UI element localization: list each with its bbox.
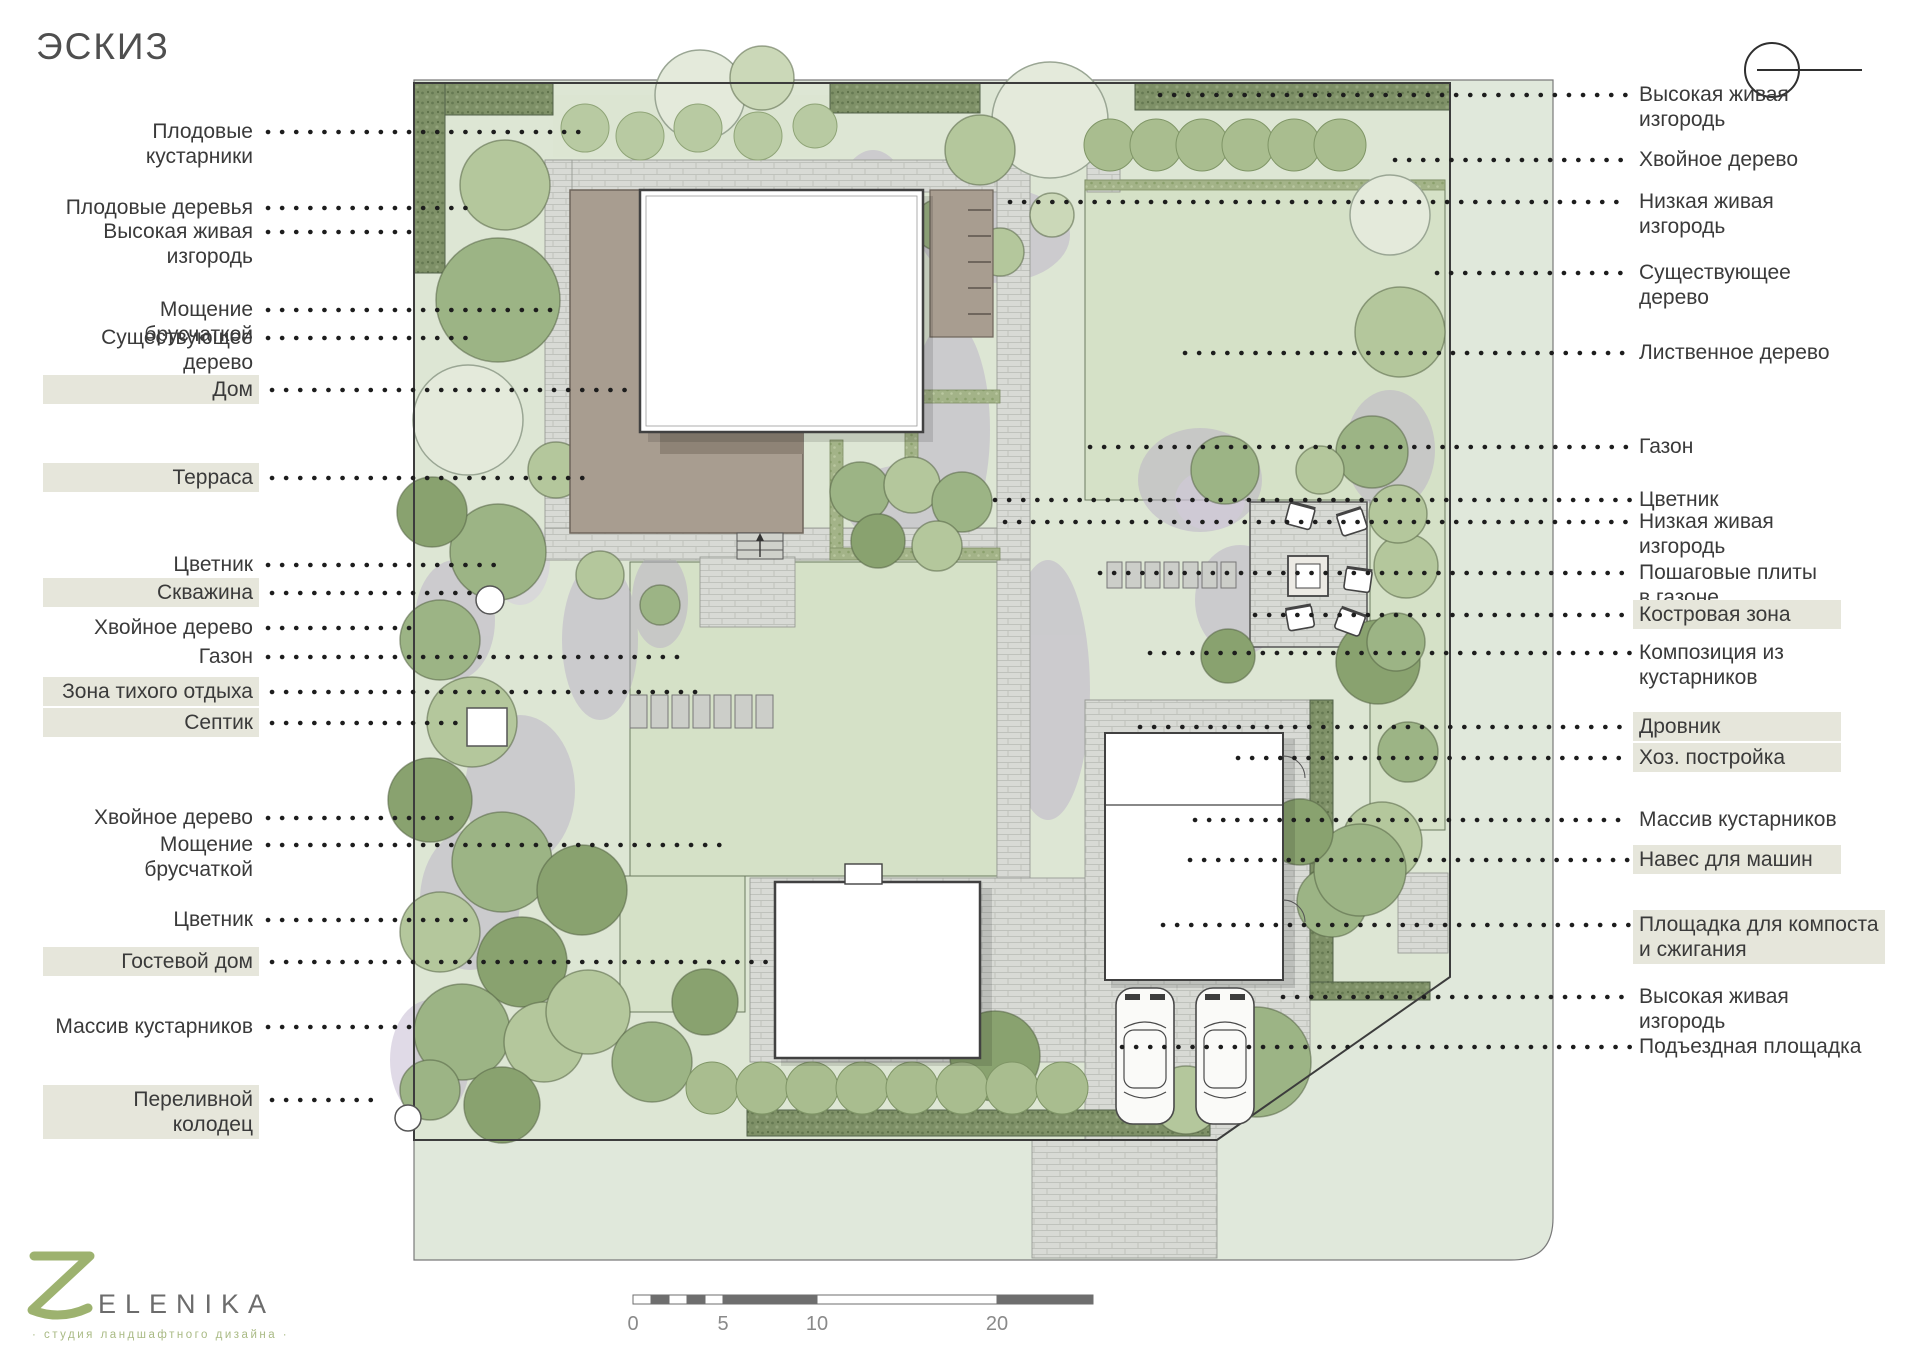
tree bbox=[576, 551, 624, 599]
legend-item-left-5: Дом bbox=[43, 375, 259, 404]
tree bbox=[1084, 119, 1136, 171]
tree bbox=[736, 1062, 788, 1114]
compost-pad bbox=[1398, 873, 1448, 953]
legend-label: Дом bbox=[43, 375, 259, 404]
legend-item-right-16: Высокая живая изгородь bbox=[1633, 982, 1903, 1036]
tree bbox=[1378, 722, 1438, 782]
legend-label: Переливной колодец bbox=[43, 1085, 259, 1139]
legend-label: Низкая живая изгородь bbox=[1633, 507, 1780, 561]
tree bbox=[413, 365, 523, 475]
tree bbox=[1201, 629, 1255, 683]
tree bbox=[1355, 287, 1445, 377]
legend-label: Лиственное дерево bbox=[1633, 338, 1836, 367]
logo-z-mark bbox=[32, 1256, 90, 1315]
tree bbox=[1367, 613, 1425, 671]
stepping-slab bbox=[735, 695, 752, 728]
legend-item-right-11: Дровник bbox=[1633, 712, 1903, 741]
tree bbox=[786, 1062, 838, 1114]
tree bbox=[1336, 416, 1408, 488]
legend-item-right-4: Лиственное дерево bbox=[1633, 338, 1903, 367]
tree bbox=[886, 1062, 938, 1114]
tree bbox=[830, 462, 890, 522]
tree bbox=[734, 112, 782, 160]
tree bbox=[1130, 119, 1182, 171]
stepping-slab bbox=[651, 695, 668, 728]
septic-tank bbox=[467, 708, 507, 746]
tree bbox=[730, 46, 794, 110]
tree bbox=[672, 969, 738, 1035]
legend-item-left-11: Зона тихого отдыха bbox=[43, 677, 259, 706]
legend-label: Хвойное дерево bbox=[88, 803, 259, 832]
legend-item-right-3: Существующее дерево bbox=[1633, 258, 1903, 312]
tree bbox=[1176, 119, 1228, 171]
legend-label: Хоз. постройка bbox=[1633, 743, 1841, 772]
tree bbox=[1350, 175, 1430, 255]
legend-label: Мощение брусчаткой bbox=[43, 830, 259, 884]
sketch-sheet: 0 5 10 20 ELENIKA · студия ландшафтного … bbox=[0, 0, 1920, 1358]
chair bbox=[1285, 605, 1314, 631]
legend-label: Цветник bbox=[167, 905, 259, 934]
logo-name: ELENIKA bbox=[98, 1289, 275, 1319]
tree bbox=[986, 1062, 1038, 1114]
car-1 bbox=[1116, 988, 1174, 1124]
stepping-slab bbox=[1221, 562, 1236, 588]
legend-label: Цветник bbox=[167, 550, 259, 579]
stepping-slab bbox=[714, 695, 731, 728]
site-plan: 0 5 10 20 ELENIKA · студия ландшафтного … bbox=[0, 0, 1920, 1358]
legend-label: Гостевой дом bbox=[43, 947, 259, 976]
tree bbox=[400, 600, 480, 680]
tree bbox=[1222, 119, 1274, 171]
legend-item-right-15: Площадка для компоста и сжигания bbox=[1633, 910, 1903, 964]
legend-item-right-12: Хоз. постройка bbox=[1633, 743, 1903, 772]
legend-label: Высокая живая изгородь bbox=[97, 217, 259, 271]
tree bbox=[851, 514, 905, 568]
legend-label: Существующее дерево bbox=[1633, 258, 1797, 312]
legend-item-right-9: Костровая зона bbox=[1633, 600, 1903, 629]
page-title: ЭСКИЗ bbox=[36, 26, 170, 68]
tree bbox=[388, 758, 472, 842]
scale-tick-0: 0 bbox=[627, 1313, 638, 1335]
tree bbox=[1036, 1062, 1088, 1114]
legend-label: Низкая живая изгородь bbox=[1633, 187, 1780, 241]
legend-label: Высокая живая изгородь bbox=[1633, 982, 1795, 1036]
legend-item-left-13: Хвойное дерево bbox=[43, 803, 259, 832]
tree bbox=[674, 104, 722, 152]
legend-item-left-18: Переливной колодец bbox=[43, 1085, 259, 1139]
legend-item-right-17: Подъездная площадка bbox=[1633, 1032, 1903, 1061]
tree bbox=[612, 1022, 692, 1102]
tree bbox=[436, 238, 560, 362]
borehole-well bbox=[476, 586, 504, 614]
scale-tick-5: 5 bbox=[717, 1313, 728, 1335]
stepping-slab bbox=[1145, 562, 1160, 588]
scale-tick-10: 10 bbox=[806, 1313, 828, 1335]
tree bbox=[640, 585, 680, 625]
tree bbox=[561, 104, 609, 152]
tree bbox=[945, 115, 1015, 185]
stepping-slab bbox=[693, 695, 710, 728]
legend-item-right-7: Низкая живая изгородь bbox=[1633, 507, 1903, 561]
house-footprint bbox=[640, 190, 923, 432]
tree bbox=[793, 104, 837, 148]
legend-item-left-14: Мощение брусчаткой bbox=[43, 830, 259, 884]
tree bbox=[686, 1062, 738, 1114]
garden-path bbox=[997, 560, 1030, 878]
legend-item-right-10: Композиция из кустарников bbox=[1633, 638, 1903, 692]
tree bbox=[836, 1062, 888, 1114]
legend-label: Хвойное дерево bbox=[88, 613, 259, 642]
tree bbox=[1369, 485, 1427, 543]
legend-item-right-5: Газон bbox=[1633, 432, 1903, 461]
tree bbox=[912, 521, 962, 571]
tree bbox=[1296, 446, 1344, 494]
tree bbox=[936, 1062, 988, 1114]
legend-item-left-10: Газон bbox=[43, 642, 259, 671]
guest-house-footprint bbox=[775, 882, 980, 1058]
tree bbox=[1268, 119, 1320, 171]
legend-item-right-2: Низкая живая изгородь bbox=[1633, 187, 1903, 241]
scale-bar: 0 5 10 20 bbox=[627, 1295, 1093, 1335]
tree bbox=[460, 140, 550, 230]
legend-item-left-9: Хвойное дерево bbox=[43, 613, 259, 642]
legend-item-left-16: Гостевой дом bbox=[43, 947, 259, 976]
legend-item-left-2: Высокая живая изгородь bbox=[43, 217, 259, 271]
legend-item-left-12: Септик bbox=[43, 708, 259, 737]
legend-item-left-4: Существующее дерево bbox=[43, 323, 259, 377]
terrace-steps bbox=[737, 533, 783, 559]
stepping-slab bbox=[672, 695, 689, 728]
legend-item-right-13: Массив кустарников bbox=[1633, 805, 1903, 834]
legend-item-left-7: Цветник bbox=[43, 550, 259, 579]
overflow-well bbox=[395, 1105, 421, 1131]
legend-label: Плодовые кустарники bbox=[43, 117, 259, 171]
legend-item-right-1: Хвойное дерево bbox=[1633, 145, 1903, 174]
legend-item-right-14: Навес для машин bbox=[1633, 845, 1903, 874]
legend-label: Дровник bbox=[1633, 712, 1841, 741]
legend-item-left-0: Плодовые кустарники bbox=[43, 117, 259, 171]
legend-label: Площадка для компоста и сжигания bbox=[1633, 910, 1885, 964]
legend-label: Костровая зона bbox=[1633, 600, 1841, 629]
legend-label: Композиция из кустарников bbox=[1633, 638, 1790, 692]
tree bbox=[537, 845, 627, 935]
tree bbox=[1030, 193, 1074, 237]
logo: ELENIKA · студия ландшафтного дизайна · bbox=[32, 1256, 289, 1341]
legend-item-right-0: Высокая живая изгородь bbox=[1633, 80, 1903, 134]
logo-tagline: · студия ландшафтного дизайна · bbox=[32, 1329, 289, 1341]
porch bbox=[930, 190, 993, 337]
legend-label: Массив кустарников bbox=[49, 1012, 259, 1041]
legend-label: Скважина bbox=[43, 578, 259, 607]
legend-label: Септик bbox=[43, 708, 259, 737]
stepping-slab bbox=[630, 695, 647, 728]
utility-building-footprint bbox=[1105, 733, 1283, 980]
legend-item-left-8: Скважина bbox=[43, 578, 259, 607]
legend-label: Хвойное дерево bbox=[1633, 145, 1804, 174]
stepping-slab bbox=[1202, 562, 1217, 588]
legend-item-left-15: Цветник bbox=[43, 905, 259, 934]
legend-label: Газон bbox=[1633, 432, 1699, 461]
legend-label: Высокая живая изгородь bbox=[1633, 80, 1795, 134]
legend-item-left-17: Массив кустарников bbox=[43, 1012, 259, 1041]
legend-item-left-6: Терраса bbox=[43, 463, 259, 492]
car-2 bbox=[1196, 988, 1254, 1124]
legend-label: Зона тихого отдыха bbox=[43, 677, 259, 706]
scale-tick-20: 20 bbox=[986, 1313, 1008, 1335]
legend-label: Массив кустарников bbox=[1633, 805, 1843, 834]
tree bbox=[1374, 534, 1438, 598]
tree bbox=[464, 1067, 540, 1143]
tree bbox=[616, 112, 664, 160]
tree bbox=[397, 477, 467, 547]
tree bbox=[1314, 119, 1366, 171]
legend-label: Существующее дерево bbox=[95, 323, 259, 377]
stepping-slab bbox=[756, 695, 773, 728]
legend-label: Навес для машин bbox=[1633, 845, 1841, 874]
legend-label: Терраса bbox=[43, 463, 259, 492]
legend-label: Подъездная площадка bbox=[1633, 1032, 1867, 1061]
legend-label: Газон bbox=[193, 642, 259, 671]
driveway bbox=[1032, 1140, 1217, 1258]
